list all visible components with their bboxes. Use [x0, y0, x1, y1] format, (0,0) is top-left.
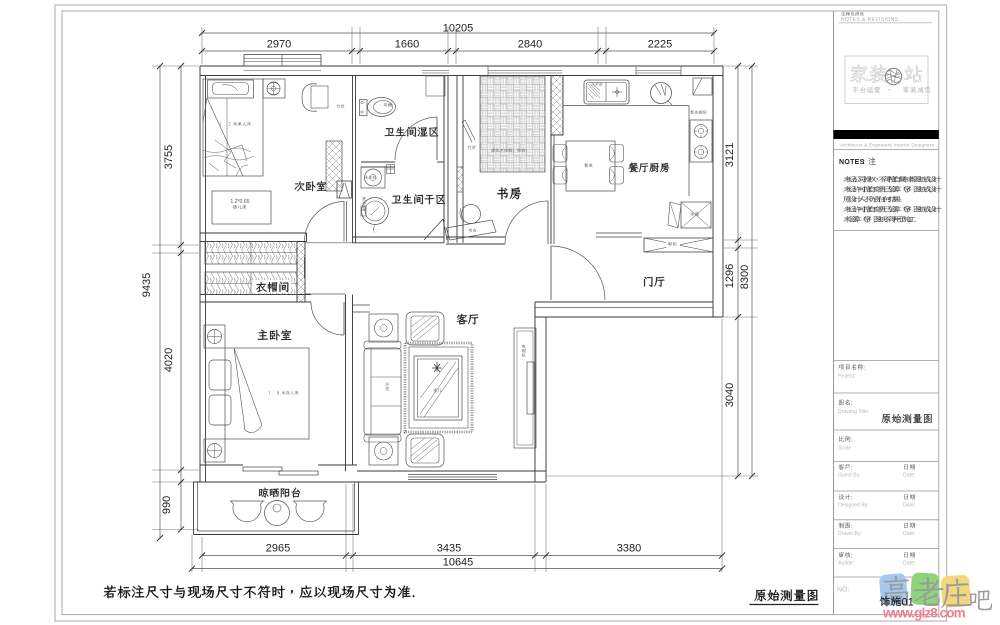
svg-text:3121: 3121: [724, 143, 736, 167]
svg-text::: :: [864, 366, 866, 372]
svg-text::: :: [851, 554, 853, 560]
svg-text:Date:: Date:: [903, 561, 915, 567]
svg-text:10205: 10205: [443, 23, 474, 35]
svg-text:Designed By:: Designed By:: [838, 503, 869, 509]
svg-text:NO:: NO:: [837, 587, 850, 594]
svg-text:4020: 4020: [163, 348, 175, 372]
svg-text:NOTES & REVISIONS:: NOTES & REVISIONS:: [841, 17, 900, 23]
svg-text::: :: [851, 438, 853, 444]
svg-text::: :: [863, 159, 865, 166]
svg-text:Date:: Date:: [903, 503, 915, 509]
svg-text:3040: 3040: [724, 383, 736, 407]
svg-text:1660: 1660: [395, 39, 419, 51]
svg-text:3380: 3380: [617, 543, 641, 555]
svg-text:9435: 9435: [141, 273, 153, 297]
svg-text:3435: 3435: [437, 543, 461, 555]
svg-text:10645: 10645: [443, 557, 474, 569]
svg-text:Drawn By:: Drawn By:: [838, 531, 862, 537]
svg-text:www.glz8.com: www.glz8.com: [882, 605, 966, 620]
svg-text:8300: 8300: [739, 265, 751, 289]
svg-text::: :: [851, 524, 853, 530]
svg-text:2970: 2970: [267, 39, 291, 51]
svg-text:Guest By:: Guest By:: [838, 473, 861, 479]
svg-text:Autide:: Autide:: [838, 561, 854, 567]
svg-text:Architects & Engineers Inte: Architects & Engineers Interior Designer…: [840, 143, 935, 148]
svg-text:2965: 2965: [266, 543, 290, 555]
svg-text:990: 990: [161, 496, 173, 514]
svg-text::: :: [851, 466, 853, 472]
svg-text::: :: [851, 496, 853, 502]
svg-text:Date:: Date:: [903, 531, 915, 537]
svg-text:Scale:: Scale:: [838, 446, 852, 452]
svg-text:1.2*0.65: 1.2*0.65: [230, 199, 249, 205]
svg-text:Drawing Title:: Drawing Title:: [838, 409, 869, 415]
svg-text:Project:: Project:: [838, 374, 856, 380]
svg-text:1296: 1296: [724, 264, 736, 288]
svg-text:3755: 3755: [163, 145, 175, 169]
svg-text:NOTES: NOTES: [839, 159, 865, 166]
svg-text:2840: 2840: [518, 39, 542, 51]
svg-text:2225: 2225: [648, 39, 672, 51]
svg-text:Date:: Date:: [903, 473, 915, 479]
svg-text::: :: [851, 401, 853, 407]
